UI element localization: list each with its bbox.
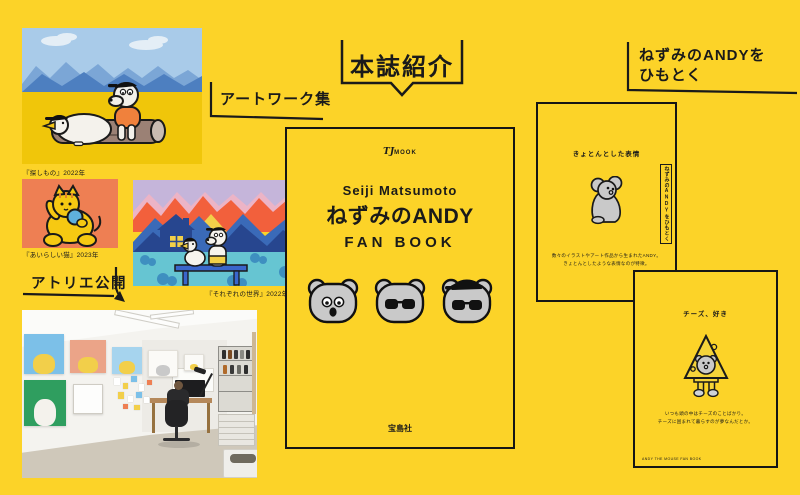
painting-dog-figure [34,399,56,426]
cart-contents [230,454,256,463]
bottle [234,350,238,359]
label-book-intro: 本誌紹介 [342,47,462,82]
wall-note [131,376,137,382]
desk-leg [152,403,155,433]
page2-caption-line1: いつも頭の中はチーズのことばかり。 [635,410,776,418]
page1-caption: 数々のイラストやアート作品から生まれたANDY。 きょとんとしたような表情なのが… [538,252,675,267]
page1-figure [538,176,675,226]
wall-painting-dog-green [24,380,66,426]
page2-caption: いつも頭の中はチーズのことばかり。 チーズに囲まれて暮らすのが夢なんだとか。 [635,410,776,425]
cover-publisher: 宝島社 [287,423,513,434]
drawer-line [219,427,254,428]
label-himotoku-line2: ひもとく [639,66,766,86]
artwork-caption-2: 『あいらしい猫』2023年 [23,249,99,259]
imprint-tj: TJ [383,147,394,157]
office-chair [165,400,188,427]
page1-caption-line1: 数々のイラストやアート作品から生まれたANDY。 [538,252,675,260]
artwork-dog-log-illustration [22,28,202,164]
label-atelier-open: アトリエ公開 [31,272,127,293]
imprint-mook: MOOK [394,150,417,156]
cover-title: ねずみのANDY [326,200,474,230]
wall-note [123,383,128,389]
bottle [240,350,244,359]
wall-note [147,380,152,385]
wall-note [128,396,133,402]
artist-head [174,381,183,390]
cover-subtitle: FAN BOOK [344,234,455,251]
atelier-photo [22,310,257,478]
bottle [228,350,232,359]
book-cover: TJMOOK Seiji Matsumoto ねずみのANDY FAN BOOK [285,127,515,449]
bottle [230,365,234,374]
painting-duck-figure [119,361,135,374]
page2-title: チーズ、好き [635,308,776,318]
book-page-cheese: チーズ、好き いつも頭の中はチーズのことばかり。 チーズに囲まれて [633,270,778,468]
page1-side-tab: ねずみのANDYをひもとく [660,164,672,244]
page2-caption-line2: チーズに囲まれて暮らすのが夢なんだとか。 [635,418,776,426]
artwork-mountains [133,180,306,286]
artwork-mountains-illustration [133,180,306,286]
wall-painting-mouse [148,350,178,377]
sitting-mouse-icon [587,176,627,226]
bottle [223,365,227,374]
artwork-dog-log [22,28,202,164]
whiteboard [73,384,103,414]
wall-painting-cat-salmon [70,340,106,373]
label-himotoku-line1: ねずみのANDYを [639,46,766,66]
page2-figure [635,334,776,400]
artwork-caption-1: 『探しもの』2022年 [23,167,85,177]
drawer-line [219,433,254,434]
wall-note [118,392,124,399]
page1-title: きょとんとした表情 [538,148,675,158]
label-artwork-collection: アートワーク集 [220,88,331,109]
shelf-line [219,360,254,361]
page1-caption-line2: きょとんとしたような表情なのが特徴。 [538,260,675,268]
bottle [237,365,241,374]
cover-mice-row [304,277,496,325]
drawer-unit [218,414,255,446]
painting-cat-figure [33,354,55,374]
mouse-face-cap-sunglasses-icon [438,277,496,325]
cheese-costume-mouse-icon [683,334,729,400]
drawer-line [219,421,254,422]
bottle [246,350,250,359]
wood-beam [252,332,256,414]
wall-note [134,405,140,410]
bottle [222,350,226,359]
wall-note [144,397,149,403]
imprint-logo: TJMOOK [383,147,417,157]
cover-author: Seiji Matsumoto [343,183,458,198]
artwork-cat-illustration [22,179,118,248]
mouse-face-plain-icon [304,277,362,325]
wall-note [123,404,128,409]
label-himotoku: ねずみのANDYを ひもとく [639,46,766,87]
metal-shelf [218,346,255,412]
painting-cat-figure [78,357,98,373]
shelf-line [219,391,254,392]
mouse-face-sunglasses-icon [371,277,429,325]
desk-leg [207,403,210,433]
wall-note [139,384,144,391]
wall-note [136,392,142,398]
artwork-cat [22,179,118,248]
chair-shadow [158,441,200,448]
bottle [244,365,248,374]
painting-mouse-figure [156,365,170,376]
drawer-line [219,439,254,440]
wall-note [114,378,120,385]
shelf-line [219,375,254,376]
utility-cart [223,449,257,478]
artwork-caption-3: 『それぞれの世界』2022年 [206,288,288,298]
wall-painting-duck [112,347,142,374]
page2-footer: ANDY THE MOUSE FAN BOOK [642,457,701,461]
wall-painting-cat-blue [24,334,64,374]
book-promo-banner: 『探しもの』2022年 『あいらしい猫』2023年 [0,0,800,495]
